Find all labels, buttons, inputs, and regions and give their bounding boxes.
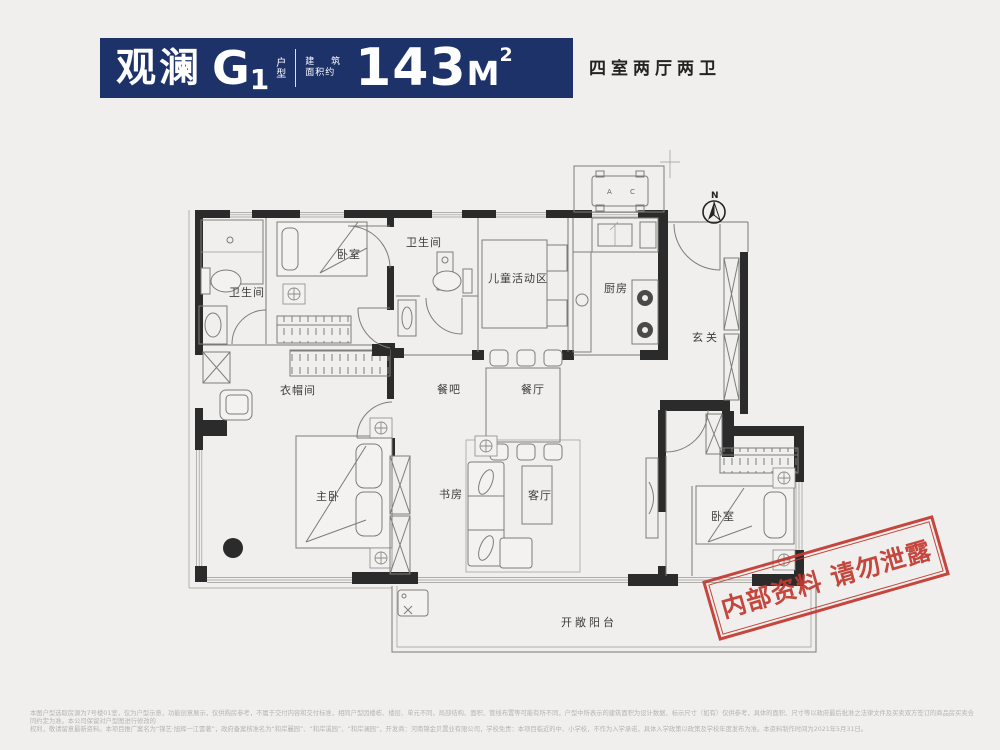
room-label-study: 书房 [439, 488, 463, 501]
room-label-bedroom-2: 卧室 [711, 509, 735, 523]
equipment-label: A C [607, 188, 643, 196]
room-label-kids-area: 儿童活动区 [488, 271, 548, 285]
foyer-cabinets [706, 258, 739, 454]
room-label-open-balcony: 开敞阳台 [561, 615, 617, 629]
bathroom-2-fixtures [398, 252, 472, 336]
disclaimer: 本图户型选取房源为7号楼01室，仅为户型示意，功能创意展示，仅供购房参考，不属于… [30, 710, 975, 733]
room-label-bathroom-1: 卫生间 [229, 285, 265, 299]
floorplan-page: 观澜 G 1 户 型 建 筑 面积约 143 M 2 四室两厅两卫 [0, 0, 1000, 750]
room-label-cloakroom: 衣帽间 [280, 383, 316, 397]
room-label-living-room: 客厅 [528, 488, 552, 502]
disclaimer-line-2: 权利，敬请留意最新资料。本项目推广案名为“锦艺·旭辉一江雲著”，政府备案核准名为… [30, 726, 975, 734]
disclaimer-line-1: 本图户型选取房源为7号楼01室，仅为户型示意，功能创意展示，仅供购房参考，不属于… [30, 710, 975, 726]
room-label-kitchen: 厨房 [604, 282, 628, 295]
cloakroom-furniture [203, 344, 390, 420]
room-label-bathroom-2: 卫生间 [406, 235, 442, 249]
room-label-dining-room: 餐厅 [521, 382, 545, 396]
floor-plan: A C N [0, 0, 1000, 750]
room-label-foyer: 玄关 [692, 330, 720, 344]
room-label-dining-bar: 餐吧 [437, 382, 461, 396]
room-label-bedroom-1: 卧室 [337, 247, 361, 261]
north-compass: N [703, 191, 725, 223]
bedroom-1-furniture [277, 222, 367, 343]
bathroom-1-fixtures [199, 220, 263, 344]
equipment-platform: A C [574, 150, 680, 212]
compass-n-label: N [711, 191, 719, 201]
room-label-master-bedroom: 主卧 [316, 490, 340, 503]
bedroom-2-furniture [696, 448, 798, 570]
